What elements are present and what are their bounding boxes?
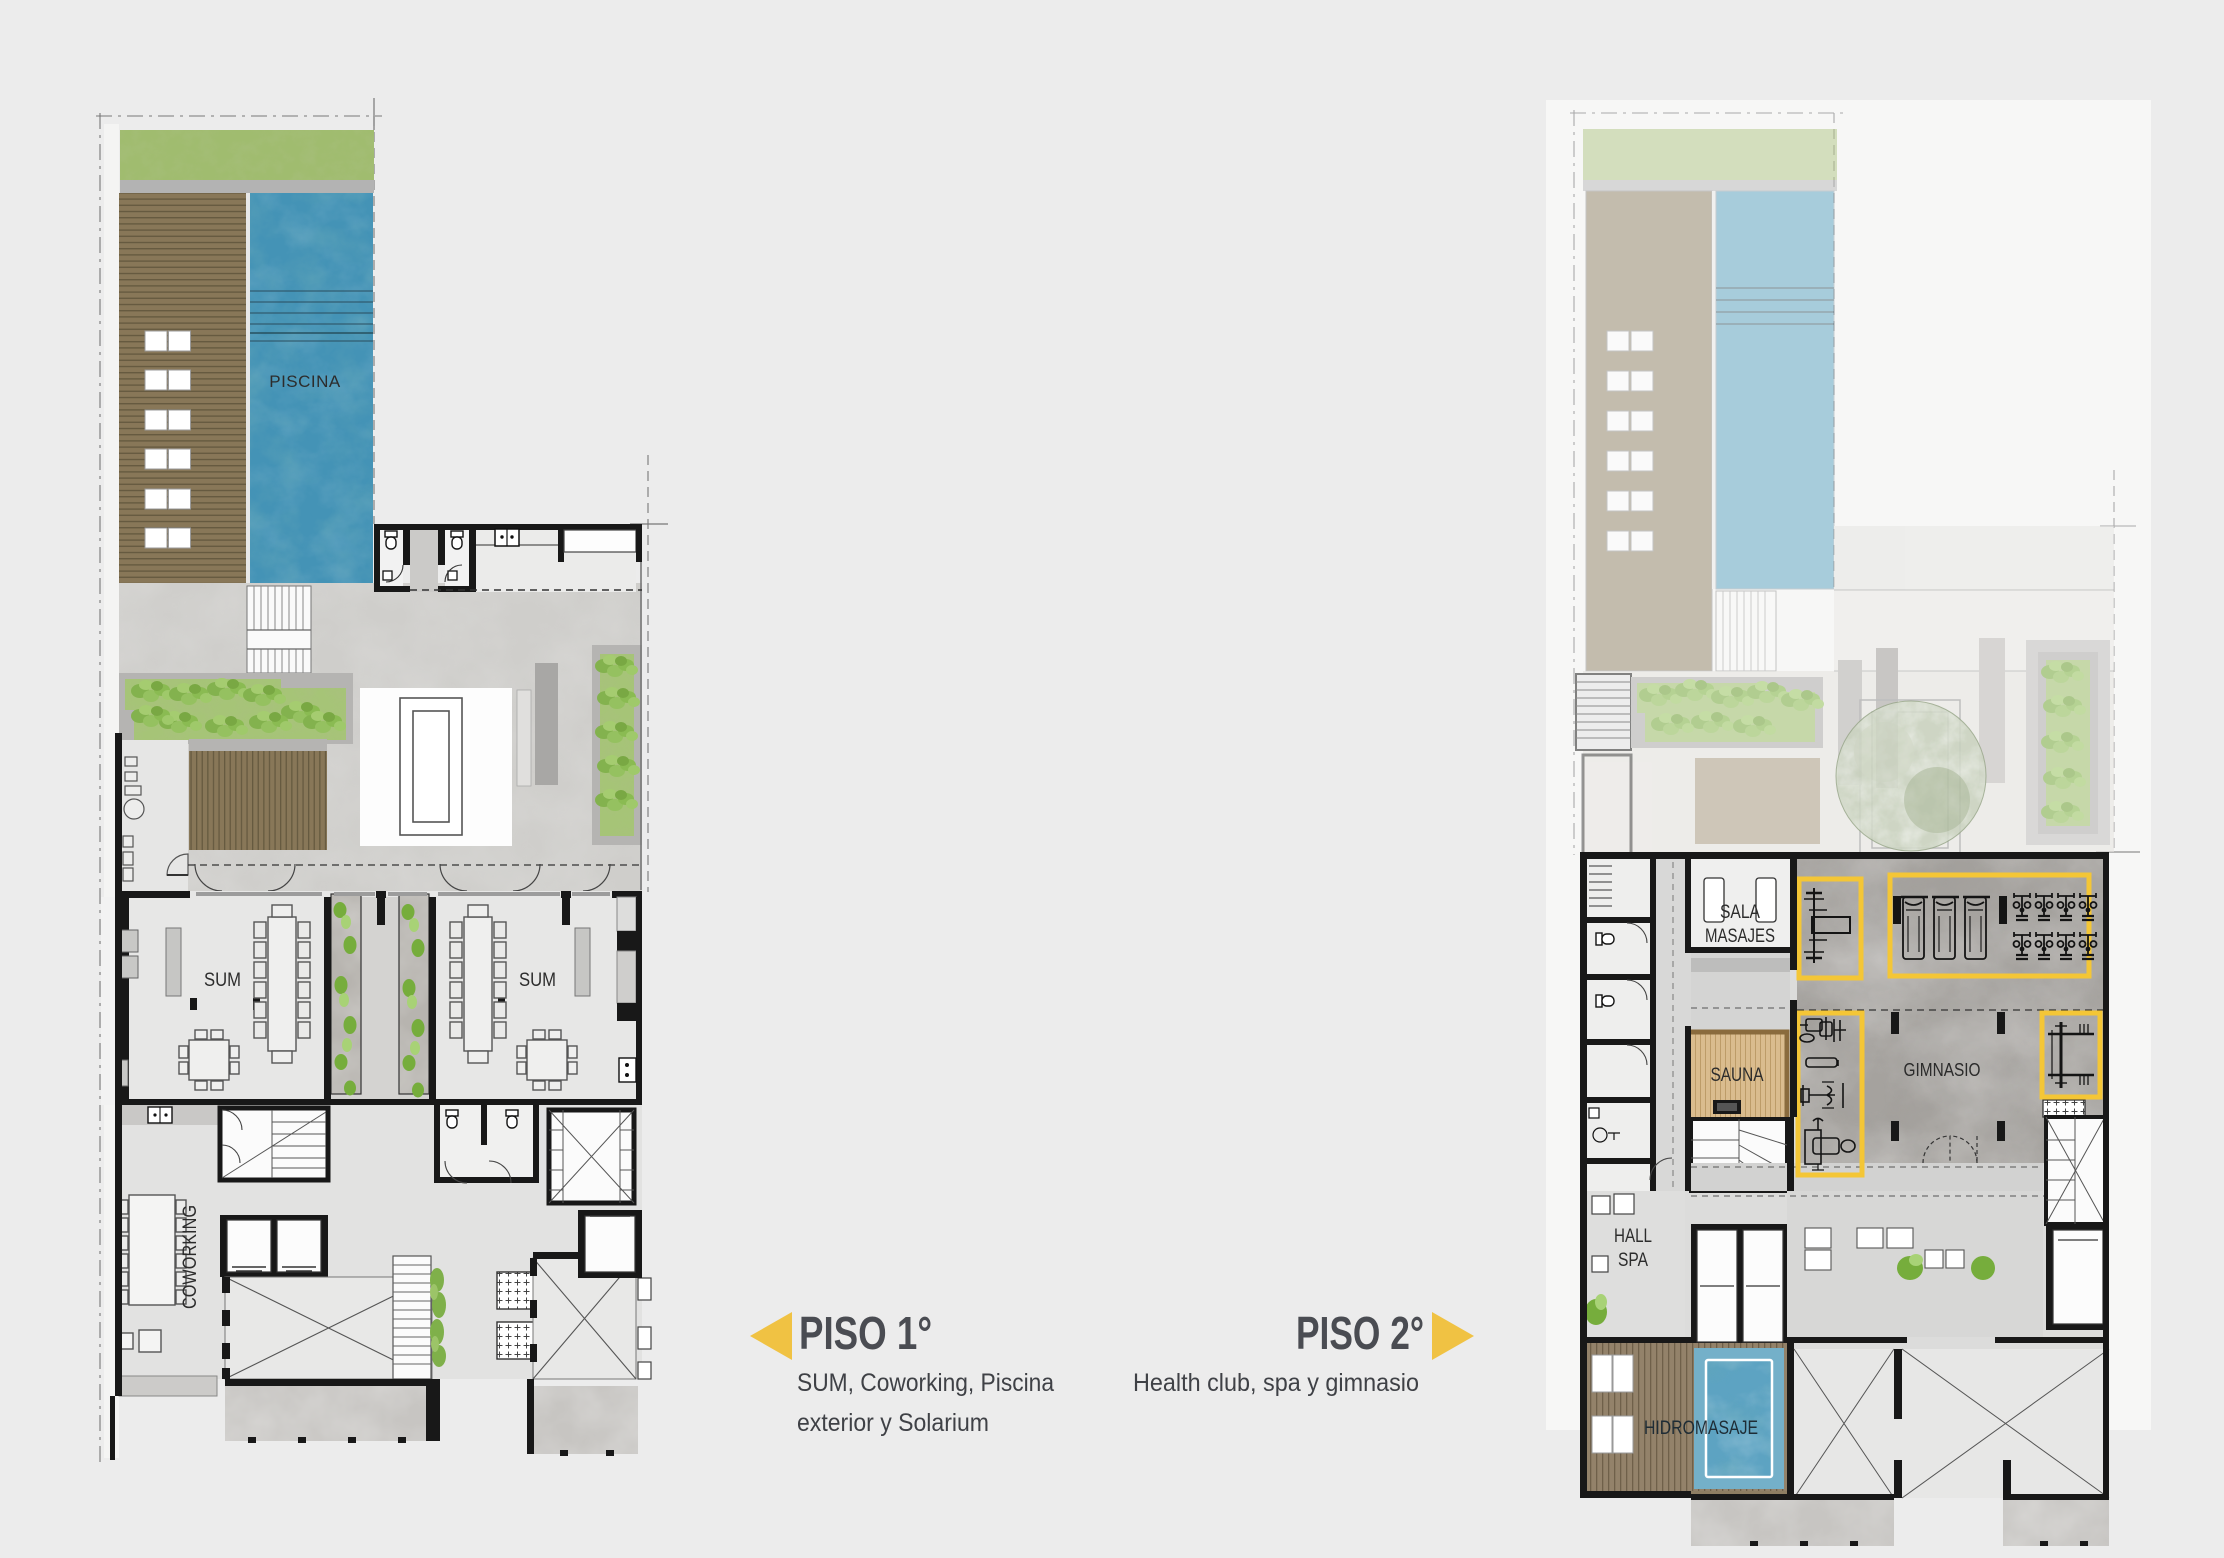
svg-text:COWORKING: COWORKING — [180, 1205, 201, 1309]
svg-text:GIMNASIO: GIMNASIO — [1904, 1060, 1981, 1080]
svg-text:SUM: SUM — [204, 970, 241, 991]
svg-text:exterior y Solarium: exterior y Solarium — [797, 1409, 989, 1437]
svg-text:PISO 2°: PISO 2° — [1296, 1307, 1424, 1359]
svg-text:SALA: SALA — [1720, 902, 1760, 923]
svg-text:HIDROMASAJE: HIDROMASAJE — [1644, 1418, 1758, 1439]
svg-text:SPA: SPA — [1618, 1250, 1648, 1271]
svg-text:SUM, Coworking, Piscina: SUM, Coworking, Piscina — [797, 1369, 1054, 1397]
svg-text:PISO 1°: PISO 1° — [799, 1307, 932, 1359]
svg-text:SAUNA: SAUNA — [1711, 1065, 1764, 1086]
svg-text:HALL: HALL — [1614, 1226, 1652, 1247]
svg-text:SUM: SUM — [519, 970, 556, 991]
svg-text:PISCINA: PISCINA — [269, 372, 341, 391]
svg-text:Health club, spa y gimnasio: Health club, spa y gimnasio — [1133, 1369, 1419, 1397]
svg-text:MASAJES: MASAJES — [1705, 926, 1775, 947]
